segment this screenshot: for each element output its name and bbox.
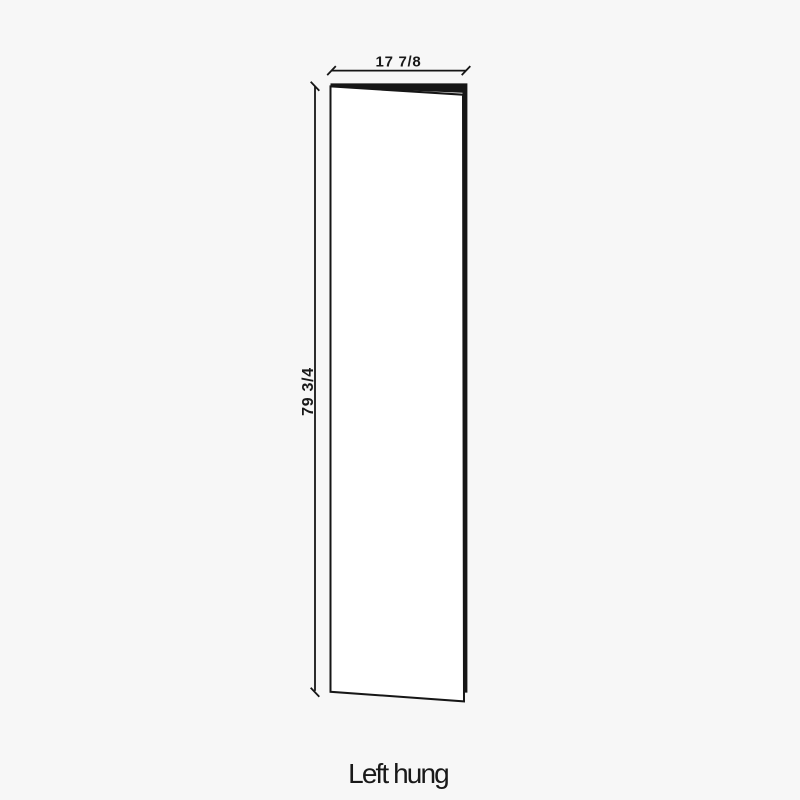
svg-text:17 7/8: 17 7/8 xyxy=(376,54,422,71)
svg-text:79 3/4: 79 3/4 xyxy=(300,367,317,416)
svg-text:Left hung: Left hung xyxy=(348,758,448,789)
